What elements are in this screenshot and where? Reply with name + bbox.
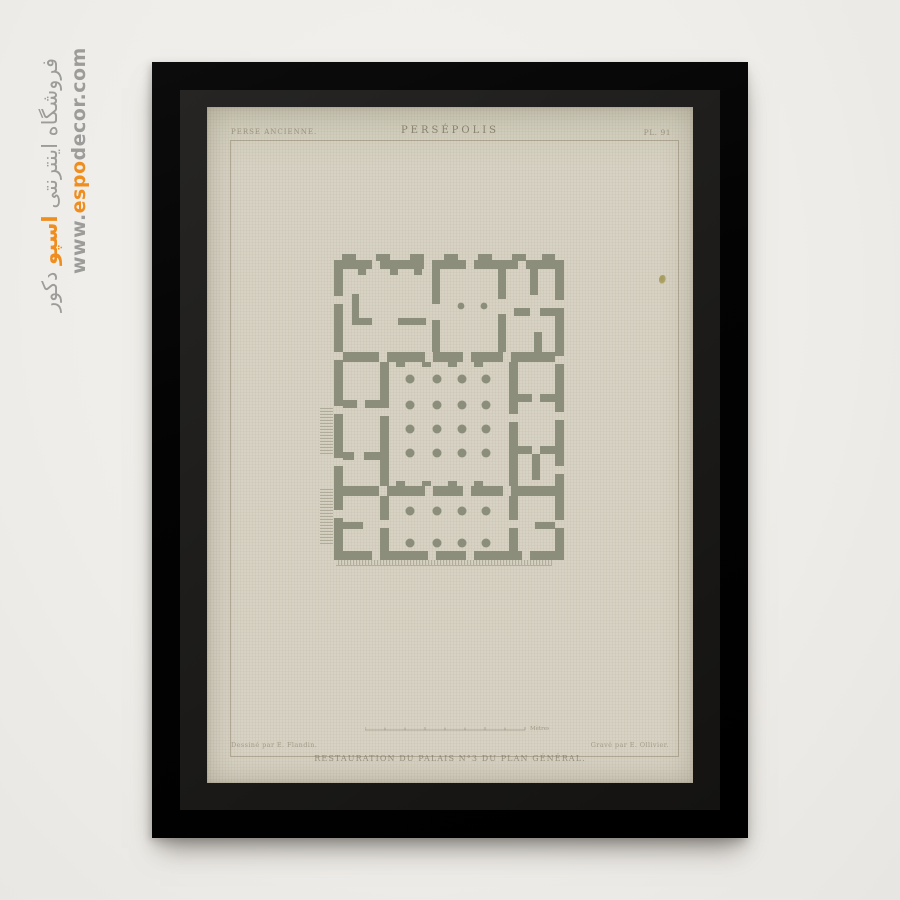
- stairway-hatch-lower: [320, 488, 333, 544]
- product-photo-background: فروشگاه اینترنتی اسپو دکور www.espodecor…: [0, 0, 900, 900]
- plate-caption: RESTAURATION DU PALAIS N°3 DU PLAN GÉNÉR…: [207, 754, 693, 763]
- plate-number: PL. 91: [644, 128, 671, 137]
- watermark-url-line: www.espodecor.com: [66, 58, 92, 274]
- floor-plan-drawing: [320, 254, 564, 568]
- watermark-url-prefix: www.: [68, 213, 90, 274]
- platform-edge-hatch: [336, 560, 552, 565]
- frame-mat: PERSE ANCIENNE. PERSÉPOLIS PL. 91: [180, 90, 720, 810]
- watermark-farsi-prefix: فروشگاه اینترنتی: [38, 58, 62, 209]
- watermark-farsi-highlight: اسپو: [38, 215, 62, 265]
- picture-frame: PERSE ANCIENNE. PERSÉPOLIS PL. 91: [152, 62, 748, 838]
- credit-right: Gravé par E. Ollivier.: [591, 741, 669, 749]
- print-title: PERSÉPOLIS: [207, 125, 693, 136]
- scale-bar: Mètres.: [365, 722, 549, 736]
- print-paper: PERSE ANCIENNE. PERSÉPOLIS PL. 91: [207, 107, 693, 783]
- watermark-url-highlight: espo: [68, 160, 90, 213]
- watermark-url-suffix: decor.com: [68, 47, 90, 160]
- plan-walls: [334, 254, 564, 560]
- watermark-farsi-suffix: دکور: [38, 272, 62, 312]
- plan-columns: [406, 303, 491, 548]
- stairway-hatch-upper: [320, 408, 333, 456]
- credit-left: Dessiné par E. Flandin.: [231, 741, 317, 749]
- watermark-farsi-line: فروشگاه اینترنتی اسپو دکور: [34, 58, 66, 274]
- watermark: فروشگاه اینترنتی اسپو دکور www.espodecor…: [34, 58, 100, 274]
- scale-label: Mètres.: [530, 725, 549, 732]
